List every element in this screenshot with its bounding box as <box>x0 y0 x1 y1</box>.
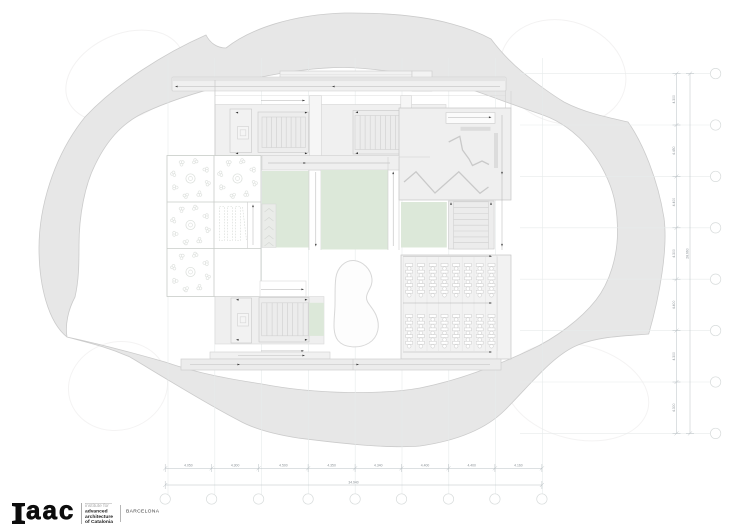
svg-text:4.300: 4.300 <box>672 95 676 104</box>
svg-text:4.300: 4.300 <box>672 249 676 258</box>
svg-text:28.660: 28.660 <box>685 248 689 258</box>
svg-text:4.300: 4.300 <box>672 403 676 412</box>
svg-text:of Catalonia: of Catalonia <box>85 519 113 525</box>
svg-text:4.160: 4.160 <box>514 464 523 468</box>
svg-text:4.500: 4.500 <box>279 464 288 468</box>
svg-text:4.400: 4.400 <box>672 198 676 207</box>
svg-text:aac: aac <box>26 495 75 525</box>
svg-text:advanced: advanced <box>85 508 108 514</box>
svg-text:BARCELONA: BARCELONA <box>126 509 160 515</box>
svg-text:architecture: architecture <box>85 514 113 520</box>
svg-text:4.400: 4.400 <box>421 464 430 468</box>
svg-text:4.050: 4.050 <box>184 464 193 468</box>
svg-text:4.300: 4.300 <box>231 464 240 468</box>
svg-text:4.400: 4.400 <box>467 464 476 468</box>
svg-text:4.300: 4.300 <box>672 352 676 361</box>
svg-text:institute for: institute for <box>85 503 109 509</box>
svg-text:4.400: 4.400 <box>672 301 676 310</box>
svg-text:34.940: 34.940 <box>348 480 358 484</box>
svg-text:4.450: 4.450 <box>672 146 676 155</box>
svg-text:4.340: 4.340 <box>374 464 383 468</box>
svg-text:4.350: 4.350 <box>327 464 336 468</box>
